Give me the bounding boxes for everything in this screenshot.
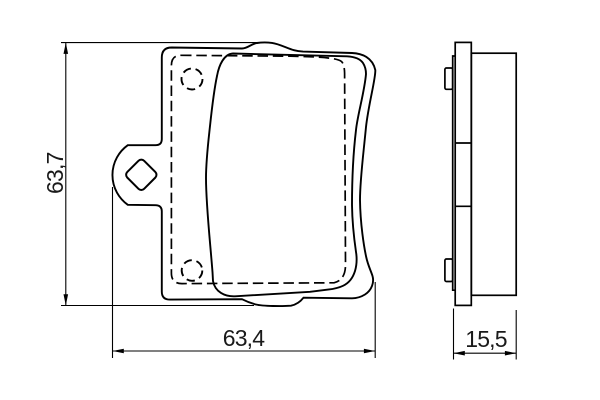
svg-text:63,4: 63,4: [223, 325, 266, 351]
svg-text:15,5: 15,5: [465, 326, 507, 352]
svg-text:63,7: 63,7: [42, 152, 68, 194]
